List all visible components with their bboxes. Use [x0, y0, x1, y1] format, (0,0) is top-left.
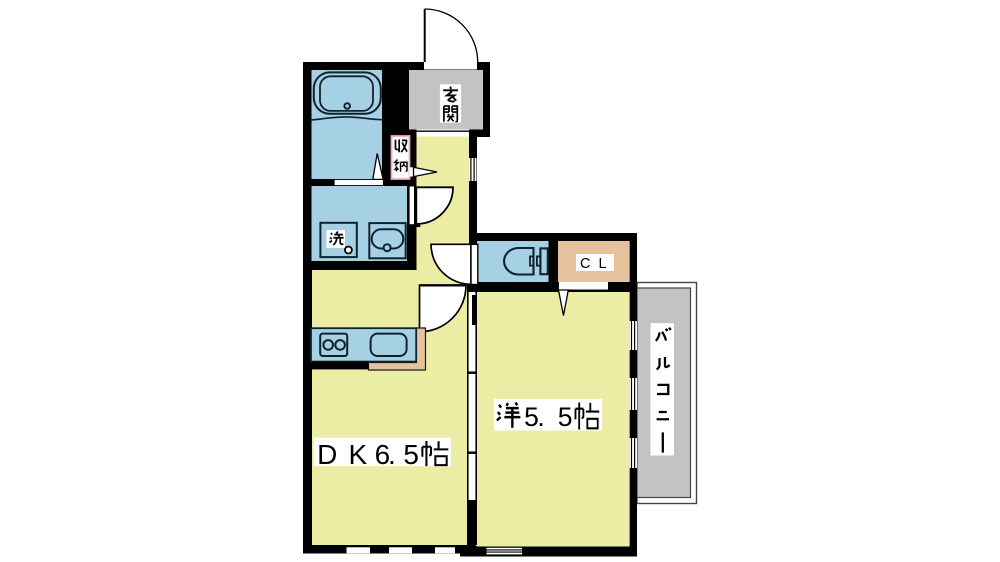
svg-text:.: . [388, 439, 396, 470]
svg-text:D: D [317, 439, 337, 470]
svg-text:K: K [349, 439, 368, 470]
svg-text:5: 5 [558, 402, 573, 432]
svg-text:CL: CL [580, 256, 615, 272]
svg-text:5: 5 [403, 439, 419, 470]
svg-text:.: . [537, 402, 544, 432]
